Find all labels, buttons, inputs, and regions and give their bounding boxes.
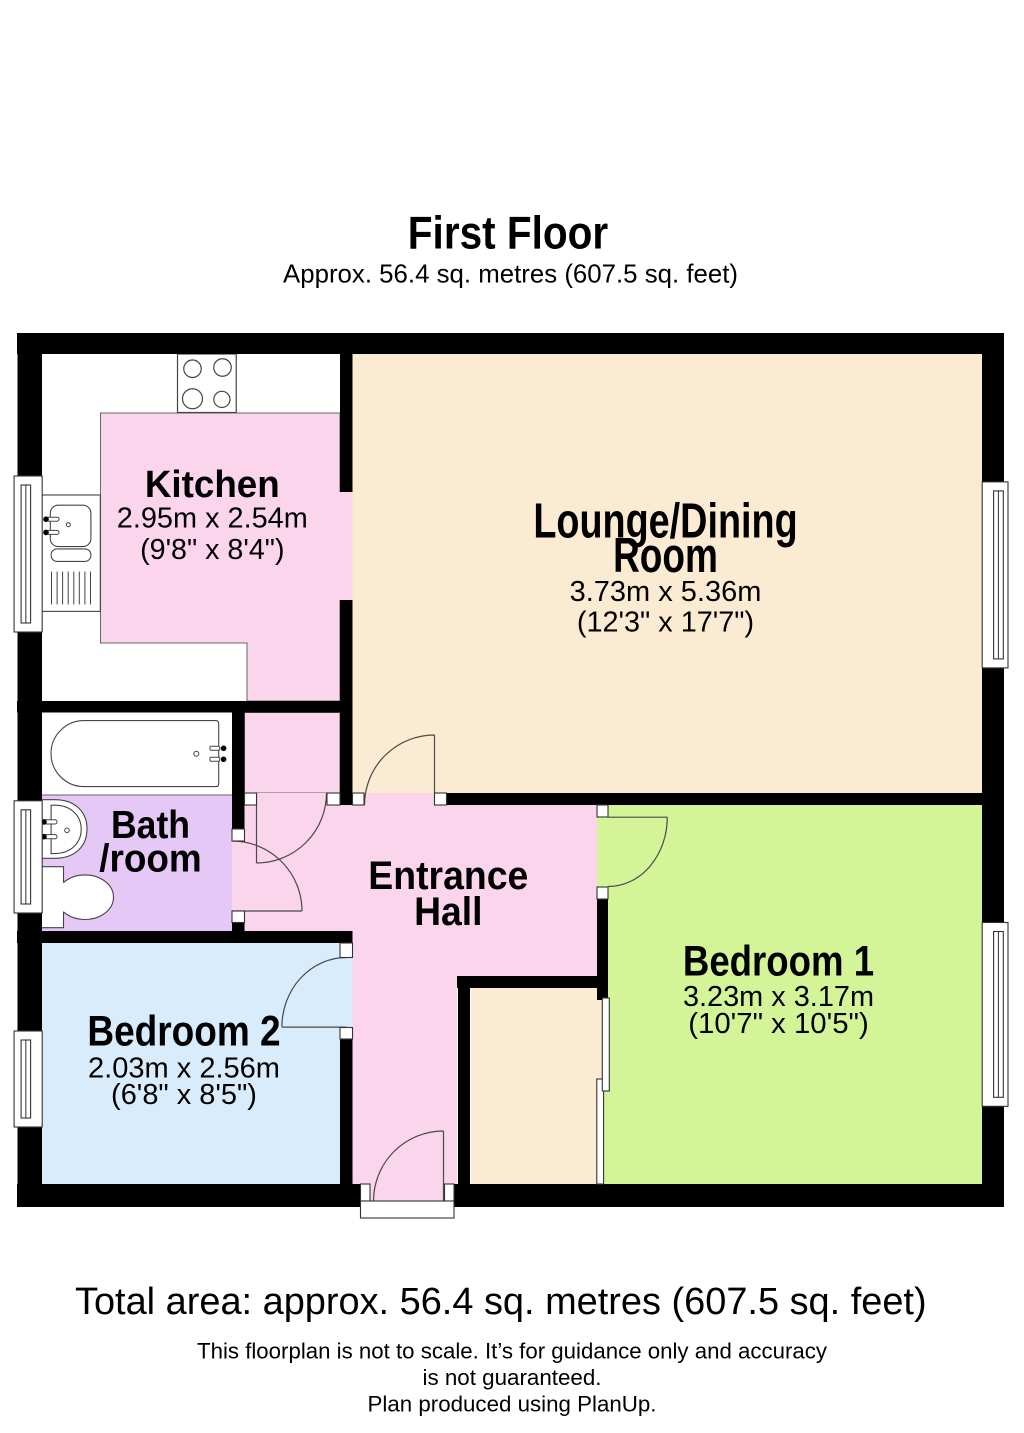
- svg-text:2.95m x 2.54m: 2.95m x 2.54m: [117, 503, 308, 535]
- svg-text:(10'7" x 10'5"): (10'7" x 10'5"): [688, 1008, 869, 1040]
- svg-text:First Floor: First Floor: [408, 207, 608, 259]
- svg-text:Kitchen: Kitchen: [145, 464, 280, 506]
- svg-text:This floorplan is not to scale: This floorplan is not to scale. It’s for…: [197, 1339, 828, 1364]
- svg-text:(9'8" x 8'4"): (9'8" x 8'4"): [140, 534, 284, 566]
- svg-text:is not guaranteed.: is not guaranteed.: [423, 1365, 602, 1390]
- svg-text:/room: /room: [99, 838, 202, 881]
- svg-text:Bedroom 2: Bedroom 2: [87, 1008, 280, 1056]
- svg-text:Plan produced using PlanUp.: Plan produced using PlanUp.: [368, 1391, 657, 1416]
- svg-text:Bedroom 1: Bedroom 1: [683, 938, 874, 986]
- svg-text:(6'8" x 8'5"): (6'8" x 8'5"): [111, 1079, 257, 1111]
- svg-text:3.73m x 5.36m: 3.73m x 5.36m: [570, 576, 762, 608]
- svg-text:Total area: approx. 56.4 sq. m: Total area: approx. 56.4 sq. metres (607…: [75, 1281, 927, 1323]
- svg-text:Hall: Hall: [414, 890, 482, 934]
- svg-text:Room: Room: [613, 529, 718, 583]
- svg-text:Approx. 56.4 sq. metres (607.5: Approx. 56.4 sq. metres (607.5 sq. feet): [283, 260, 738, 288]
- svg-text:(12'3" x 17'7"): (12'3" x 17'7"): [577, 607, 754, 639]
